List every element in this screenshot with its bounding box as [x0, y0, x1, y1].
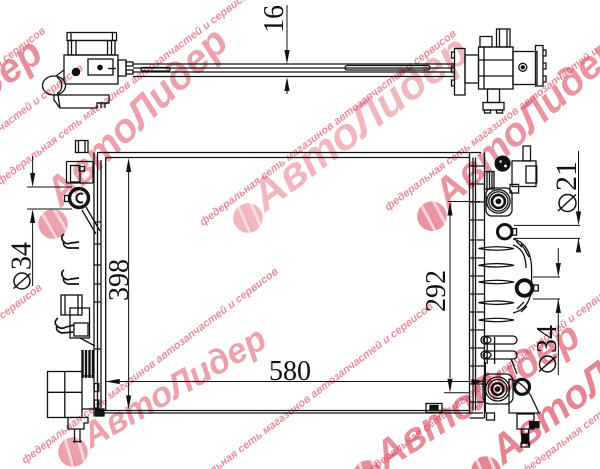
svg-text:АвтоЛидер: АвтоЛидер: [36, 19, 237, 215]
svg-text:16: 16: [259, 5, 290, 33]
svg-text:398: 398: [104, 259, 135, 301]
svg-text:34: 34: [7, 242, 38, 270]
svg-text:580: 580: [269, 356, 311, 387]
svg-text:федеральная сеть магазинов авт: федеральная сеть магазинов автозапчастей…: [0, 281, 45, 469]
svg-text:21: 21: [550, 161, 583, 191]
svg-text:федеральная сеть магазинов авт: федеральная сеть магазинов автозапчастей…: [198, 27, 459, 228]
